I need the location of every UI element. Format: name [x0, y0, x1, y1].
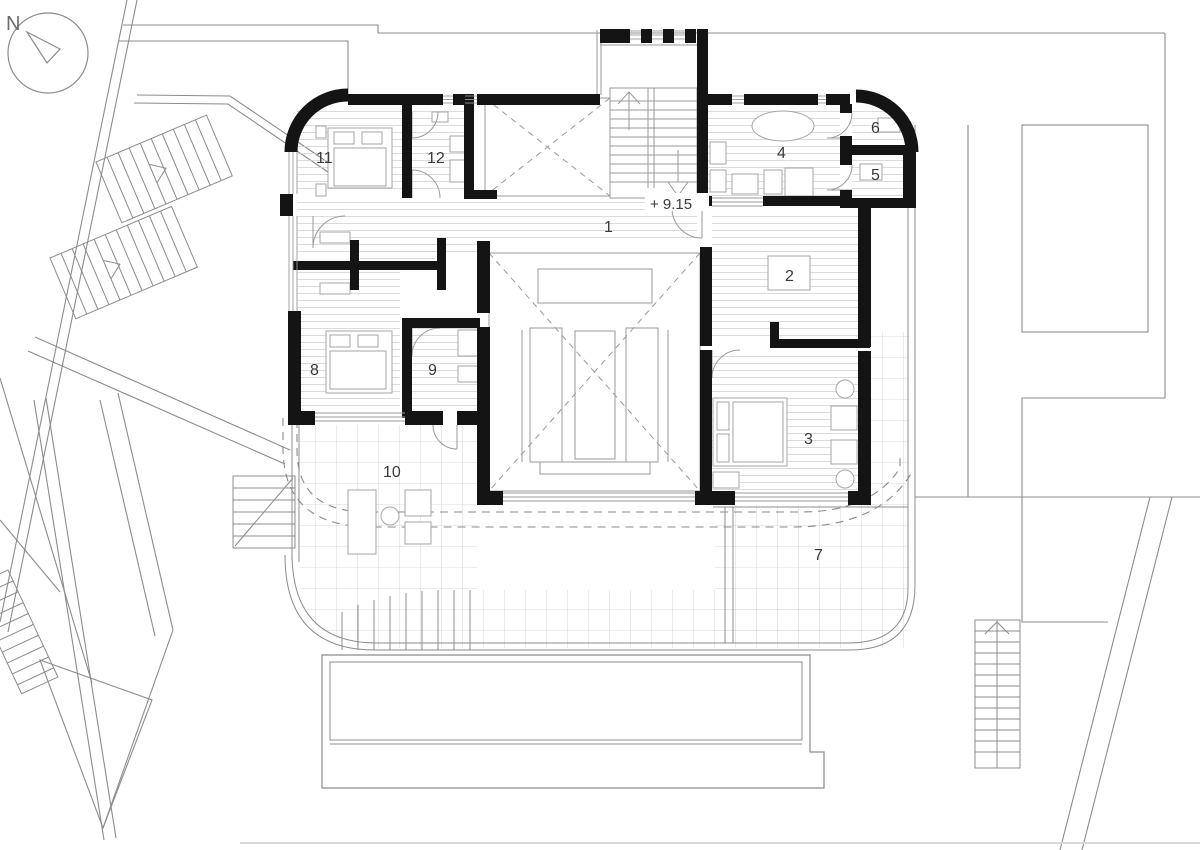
interior-staircase	[597, 30, 697, 198]
site-stair-upper-left-2	[50, 206, 197, 318]
north-label: N	[6, 13, 20, 35]
room-label-4: 4	[777, 145, 786, 162]
room-label-9: 9	[428, 362, 437, 379]
central-double-height-void	[489, 253, 700, 491]
floor-plan-canvas: N	[0, 0, 1200, 850]
east-strip-tiles	[871, 332, 908, 507]
north-needle	[27, 32, 60, 63]
garden-stair-small	[233, 476, 295, 548]
elevation-marker: + 9.15	[650, 196, 692, 213]
terrace-7-tiles	[715, 505, 908, 641]
room-label-12: 12	[427, 150, 445, 167]
site-stair-upper-left-1	[96, 115, 232, 223]
floor-plan-svg: N	[0, 0, 1200, 850]
room-label-1: 1	[604, 219, 613, 236]
room-label-3: 3	[804, 431, 813, 448]
room-label-10: 10	[383, 464, 401, 481]
terrace-10-tiles	[300, 425, 477, 648]
lower-pool-band	[322, 655, 824, 788]
room-label-6: 6	[871, 120, 880, 137]
room-label-8: 8	[310, 362, 319, 379]
room-label-11: 11	[316, 150, 333, 167]
site-stair-lower-left	[0, 570, 58, 694]
skylight-entry-void	[485, 98, 610, 196]
site-stair-right	[975, 620, 1020, 768]
room-label-2: 2	[785, 268, 794, 285]
pool-rectangle	[1022, 125, 1148, 332]
room-label-5: 5	[871, 167, 880, 184]
room-label-7: 7	[814, 547, 823, 564]
